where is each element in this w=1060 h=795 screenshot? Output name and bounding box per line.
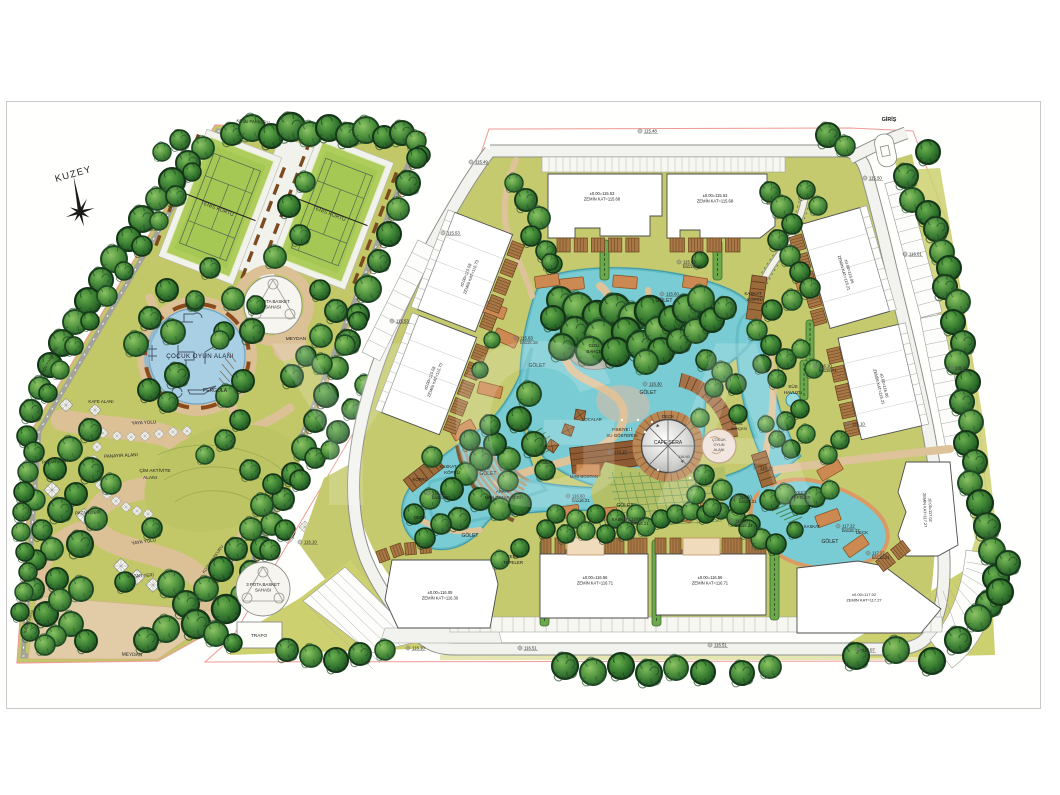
svg-text:115.53: 115.53 (447, 230, 460, 235)
svg-text:ALANI: ALANI (143, 475, 157, 481)
svg-text:3 POTA BASKET: 3 POTA BASKET (246, 582, 280, 587)
svg-text:ba115.21: ba115.21 (872, 555, 890, 560)
svg-text:ZEMİN KAT=116.30: ZEMİN KAT=116.30 (422, 596, 459, 601)
svg-text:116.10: 116.10 (412, 645, 425, 650)
svg-text:SAHASI: SAHASI (255, 588, 271, 593)
svg-text:±0.00=117.02: ±0.00=117.02 (852, 592, 877, 597)
svg-text:PERGOLA: PERGOLA (203, 388, 228, 394)
svg-text:TRAFO: TRAFO (251, 633, 268, 639)
svg-text:115.49: 115.49 (475, 159, 488, 164)
svg-text:116.01: 116.01 (955, 365, 968, 370)
svg-text:116.01: 116.01 (909, 251, 922, 256)
svg-text:GİRİŞ: GİRİŞ (882, 116, 897, 123)
svg-text:DECK: DECK (856, 530, 868, 535)
svg-text:116.51: 116.51 (714, 642, 727, 647)
svg-text:ZEMİN KAT=115.68: ZEMİN KAT=115.68 (697, 199, 734, 204)
svg-text:±0.00=115.53: ±0.00=115.53 (590, 191, 616, 196)
svg-text:TEPELER: TEPELER (503, 560, 523, 565)
svg-text:±0.00=116.05: ±0.00=116.05 (428, 590, 454, 595)
svg-text:ZEMİN KAT=116.71: ZEMİN KAT=116.71 (692, 581, 729, 586)
svg-text:ÇOCUK OYUN ALANI: ÇOCUK OYUN ALANI (166, 353, 234, 360)
svg-text:115.48: 115.48 (644, 128, 657, 133)
svg-text:KAFE ALANI: KAFE ALANI (88, 399, 113, 404)
svg-text:MEYDAN: MEYDAN (122, 652, 143, 659)
svg-text:116.10: 116.10 (852, 421, 865, 426)
svg-text:±0.00=116.56: ±0.00=116.56 (698, 575, 724, 580)
svg-text:ZEMİN KAT=116.71: ZEMİN KAT=116.71 (577, 581, 614, 586)
svg-text:116.51: 116.51 (524, 645, 537, 650)
svg-text:YGA: YGA (267, 292, 842, 555)
svg-text:ba115.18: ba115.18 (683, 264, 701, 269)
svg-text:ZEMİN KAT=117.27: ZEMİN KAT=117.27 (846, 598, 882, 603)
svg-text:±0.00=116.56: ±0.00=116.56 (583, 575, 609, 580)
svg-text:ZEMİN KAT=115.68: ZEMİN KAT=115.68 (584, 197, 621, 202)
svg-text:ÇİM AKTİVİTE: ÇİM AKTİVİTE (139, 467, 170, 474)
svg-text:±0.00=115.53: ±0.00=115.53 (703, 193, 729, 198)
svg-text:117.07: 117.07 (862, 647, 875, 652)
svg-text:115.50: 115.50 (869, 175, 882, 180)
